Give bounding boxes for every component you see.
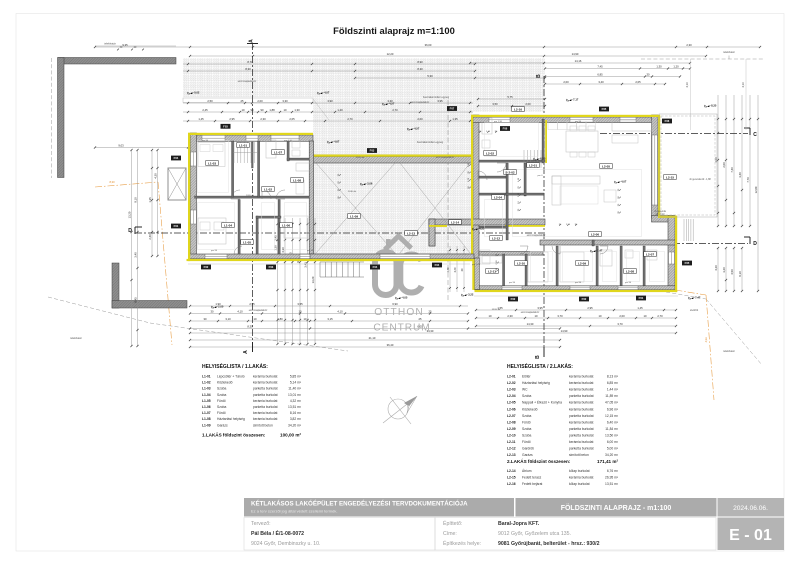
svg-text:34,20 m²: 34,20 m²	[288, 423, 302, 427]
svg-text:L2-13: L2-13	[407, 231, 415, 235]
svg-text:kerámia burkolat: kerámia burkolat	[253, 417, 277, 421]
svg-text:pm 90: pm 90	[509, 282, 516, 284]
svg-text:Pál Béla / É/1-08-0072: Pál Béla / É/1-08-0072	[251, 529, 304, 537]
svg-text:1,35: 1,35	[452, 117, 458, 121]
svg-text:F06: F06	[503, 127, 508, 131]
svg-text:L1-08: L1-08	[293, 178, 301, 182]
svg-text:WC: WC	[522, 388, 528, 392]
svg-text:2,40: 2,40	[447, 267, 450, 272]
svg-text:5,30: 5,30	[427, 74, 433, 78]
svg-text:Földszinti alaprajz m=1:100: Földszinti alaprajz m=1:100	[333, 25, 455, 36]
svg-text:39/30 db: 39/30 db	[492, 309, 501, 311]
svg-text:-4,07: -4,07	[323, 90, 330, 94]
svg-text:10: 10	[284, 108, 287, 112]
svg-text:10: 10	[254, 317, 257, 321]
svg-text:telekhatár: telekhatár	[723, 50, 735, 54]
svg-text:B: B	[535, 355, 541, 359]
svg-text:2,00: 2,00	[619, 314, 625, 318]
svg-text:pm 90: pm 90	[211, 250, 218, 252]
svg-text:171,41 m²: 171,41 m²	[597, 459, 618, 464]
svg-text:11,89 m²: 11,89 m²	[605, 394, 619, 398]
svg-text:10: 10	[242, 108, 245, 112]
svg-text:L2-07: L2-07	[507, 414, 516, 418]
svg-text:OTTHON: OTTHON	[374, 307, 424, 318]
svg-text:Garázs: Garázs	[522, 453, 533, 457]
svg-text:parketta burkolat: parketta burkolat	[569, 394, 594, 398]
svg-text:Tervező:: Tervező:	[251, 521, 271, 527]
svg-text:4,50: 4,50	[730, 269, 734, 275]
svg-text:Építkezés helye:: Építkezés helye:	[443, 540, 481, 547]
svg-text:Közlekedő: Közlekedő	[522, 407, 538, 411]
svg-text:13,51 m²: 13,51 m²	[288, 405, 302, 409]
svg-text:kerámia burkolat: kerámia burkolat	[253, 375, 277, 379]
svg-text:L2-14: L2-14	[451, 220, 459, 224]
svg-text:Átrium: Átrium	[522, 469, 532, 473]
svg-text:kerámia burkolat: kerámia burkolat	[569, 407, 593, 411]
svg-text:3,40: 3,40	[598, 80, 604, 84]
svg-text:D: D	[753, 241, 757, 247]
svg-text:telekhatár: telekhatár	[104, 42, 116, 46]
svg-text:eső-/csapadékvíz: eső-/csapadékvíz	[527, 234, 546, 237]
svg-text:6,96 m²: 6,96 m²	[607, 407, 619, 411]
svg-text:pm 90: pm 90	[625, 282, 632, 284]
svg-text:2,05: 2,05	[289, 117, 295, 121]
svg-text:HELYISÉGLISTA / 1.LAKÁS:: HELYISÉGLISTA / 1.LAKÁS:	[202, 362, 268, 370]
svg-text:5,00 m²: 5,00 m²	[607, 447, 619, 451]
svg-text:Fedett bejárat: Fedett bejárat	[522, 482, 542, 486]
svg-text:L1-04: L1-04	[224, 223, 232, 227]
svg-text:-8,35: -8,35	[710, 103, 717, 107]
svg-text:1,35: 1,35	[148, 197, 152, 203]
svg-text:6,40 m²: 6,40 m²	[607, 420, 619, 424]
svg-text:L1-09: L1-09	[350, 214, 358, 218]
svg-text:parketta burkolat: parketta burkolat	[569, 447, 594, 451]
svg-text:F07: F07	[450, 107, 455, 111]
svg-text:1,40: 1,40	[337, 108, 343, 112]
svg-text:2,30: 2,30	[507, 314, 513, 318]
svg-text:1.LAKÁS földszint összesen:: 1.LAKÁS földszint összesen:	[202, 432, 266, 438]
svg-text:11,40 m²: 11,40 m²	[288, 387, 302, 391]
svg-text:Fürdő: Fürdő	[217, 399, 226, 403]
svg-text:14,30: 14,30	[527, 322, 534, 326]
svg-text:4,13: 4,13	[685, 82, 689, 88]
svg-text:14,90: 14,90	[572, 52, 579, 56]
svg-text:5,85 m²: 5,85 m²	[290, 375, 302, 379]
svg-text:8,30: 8,30	[245, 67, 251, 71]
svg-text:12,80: 12,80	[754, 186, 758, 193]
svg-text:36,40: 36,40	[387, 343, 394, 347]
svg-text:-7,47: -7,47	[694, 295, 701, 299]
svg-text:30: 30	[204, 317, 207, 321]
svg-text:Alt: -4,10: Alt: -4,10	[655, 213, 665, 216]
svg-text:kőlap burkolat: kőlap burkolat	[569, 482, 590, 486]
svg-text:L1-01: L1-01	[202, 375, 211, 379]
svg-text:8,90: 8,90	[417, 60, 423, 64]
svg-text:L2-09: L2-09	[507, 427, 516, 431]
svg-text:6,00 m²: 6,00 m²	[607, 440, 619, 444]
svg-text:CENTRUM: CENTRUM	[373, 323, 430, 334]
svg-text:3,95: 3,95	[537, 306, 543, 310]
svg-text:8,13 m²: 8,13 m²	[607, 375, 619, 379]
svg-text:2,00: 2,00	[417, 117, 423, 121]
svg-text:30: 30	[647, 73, 650, 77]
svg-text:12,15 m²: 12,15 m²	[605, 414, 619, 418]
svg-text:parketta burkolat: parketta burkolat	[569, 414, 594, 418]
svg-text:1,45: 1,45	[198, 117, 204, 121]
svg-text:3,30: 3,30	[282, 99, 288, 103]
svg-text:-3,06: -3,06	[366, 181, 373, 185]
svg-text:9024 Győr, Dembinszky u. 10.: 9024 Győr, Dembinszky u. 10.	[251, 541, 321, 547]
svg-text:L2-15: L2-15	[507, 475, 516, 479]
svg-text:4,10: 4,10	[337, 310, 343, 314]
svg-text:eső-/csapadékvíz: eső-/csapadékvíz	[521, 311, 540, 314]
svg-text:2,70: 2,70	[657, 314, 663, 318]
svg-text:4,13: 4,13	[741, 82, 745, 88]
svg-text:5,75: 5,75	[507, 95, 513, 99]
svg-text:eső-/csapadékvíz: eső-/csapadékvíz	[411, 101, 430, 104]
svg-text:eső-/csapadékvíz: eső-/csapadékvíz	[436, 156, 455, 159]
svg-text:-4,57: -4,57	[413, 126, 420, 130]
svg-text:4,20: 4,20	[714, 265, 718, 271]
svg-text:-4,57: -4,57	[388, 101, 395, 105]
svg-text:1,80: 1,80	[277, 317, 283, 321]
svg-text:L1-04: L1-04	[202, 393, 211, 397]
svg-text:2024.06.06.: 2024.06.06.	[733, 505, 768, 512]
svg-text:Szoba: Szoba	[217, 387, 227, 391]
svg-text:Előtér: Előtér	[522, 375, 532, 379]
svg-text:47,05 m²: 47,05 m²	[605, 401, 619, 405]
svg-text:4,32 m²: 4,32 m²	[290, 399, 302, 403]
svg-text:pm 1,30: pm 1,30	[284, 140, 293, 142]
svg-text:pm 90: pm 90	[307, 250, 314, 252]
svg-text:S-2-02: S-2-02	[505, 170, 515, 174]
svg-text:kerámia burkolat: kerámia burkolat	[569, 388, 593, 392]
svg-text:F02: F02	[204, 265, 209, 269]
svg-text:L2-08: L2-08	[626, 269, 634, 273]
svg-text:Gardrób: Gardrób	[522, 447, 534, 451]
svg-text:10: 10	[304, 317, 307, 321]
svg-text:2,00: 2,00	[722, 162, 726, 168]
svg-text:L1-01: L1-01	[239, 143, 247, 147]
svg-text:2,40: 2,40	[148, 234, 152, 240]
svg-text:-6,55: -6,55	[539, 156, 546, 160]
svg-text:pm 90: pm 90	[575, 282, 582, 284]
svg-text:L1-05: L1-05	[243, 240, 251, 244]
svg-text:szellőző: szellőző	[690, 310, 699, 312]
svg-text:F05: F05	[685, 261, 690, 265]
svg-text:L2-15: L2-15	[666, 175, 674, 179]
svg-text:-3,22: -3,22	[467, 292, 474, 296]
svg-text:C: C	[753, 132, 757, 138]
svg-text:Ez a terv szerzői jog által vé: Ez a terv szerzői jog által védett szell…	[251, 509, 337, 514]
svg-text:26,95 m²: 26,95 m²	[605, 475, 619, 479]
svg-text:Szoba: Szoba	[217, 405, 227, 409]
svg-text:parketta burkolat: parketta burkolat	[253, 393, 278, 397]
svg-text:L2-09: L2-09	[578, 261, 586, 265]
svg-text:kerámia burkolat: kerámia burkolat	[569, 401, 593, 405]
svg-text:9,10: 9,10	[134, 197, 138, 203]
svg-text:9081 Győrújbarát, belterület: 9081 Győrújbarát, belterület - hrsz.: 93…	[498, 541, 600, 547]
svg-text:3,70: 3,70	[557, 314, 563, 318]
svg-text:12,20: 12,20	[387, 52, 394, 56]
svg-text:kerámia burkolat: kerámia burkolat	[253, 381, 277, 385]
svg-text:7,70: 7,70	[746, 177, 750, 183]
svg-text:L2-16: L2-16	[507, 482, 516, 486]
svg-text:25: 25	[241, 99, 244, 103]
svg-text:L2-08: L2-08	[507, 420, 516, 424]
svg-text:L2-04: L2-04	[507, 394, 516, 398]
svg-text:F04: F04	[174, 156, 179, 160]
svg-text:L1-06: L1-06	[202, 405, 211, 409]
svg-text:10: 10	[489, 314, 492, 318]
svg-text:D: D	[128, 228, 132, 234]
svg-text:11,84 m²: 11,84 m²	[605, 427, 619, 431]
svg-text:30: 30	[211, 310, 214, 314]
svg-text:Fürdő: Fürdő	[522, 420, 531, 424]
svg-text:Szoba: Szoba	[522, 414, 532, 418]
svg-text:2,70: 2,70	[392, 108, 398, 112]
svg-text:vb gerenda: vb gerenda	[654, 210, 666, 213]
svg-text:L2-12: L2-12	[492, 236, 500, 240]
svg-text:2.LAKÁS földszint összesen:: 2.LAKÁS földszint összesen:	[507, 458, 571, 464]
svg-text:100,00 m²: 100,00 m²	[280, 433, 301, 438]
svg-text:telekhatár: telekhatár	[70, 336, 82, 340]
svg-text:1,30: 1,30	[294, 108, 300, 112]
svg-text:13,51 m²: 13,51 m²	[605, 482, 619, 486]
svg-text:2,50: 2,50	[207, 99, 213, 103]
svg-text:parketta burkolat: parketta burkolat	[569, 427, 594, 431]
svg-text:9,35: 9,35	[122, 43, 128, 47]
svg-text:2,00: 2,00	[525, 102, 531, 106]
svg-text:Szoba: Szoba	[217, 393, 227, 397]
svg-text:L2-16: L2-16	[514, 107, 522, 111]
svg-text:L2-14: L2-14	[507, 469, 516, 473]
svg-text:2,05: 2,05	[635, 80, 641, 84]
svg-text:2,30: 2,30	[686, 43, 692, 47]
svg-text:L2-07: L2-07	[646, 252, 654, 256]
svg-text:Háztartási helyiség: Háztartási helyiség	[217, 417, 245, 421]
svg-text:6,76 m²: 6,76 m²	[607, 469, 619, 473]
svg-text:Szoba: Szoba	[522, 427, 532, 431]
svg-text:F04: F04	[373, 265, 378, 269]
svg-text:L1-07: L1-07	[274, 150, 282, 154]
svg-text:10: 10	[535, 314, 538, 318]
svg-text:F03: F03	[370, 149, 375, 153]
svg-text:7,45: 7,45	[597, 65, 603, 69]
svg-text:Háztartási helyiség: Háztartási helyiség	[522, 381, 550, 385]
svg-text:L2-10: L2-10	[517, 261, 525, 265]
svg-text:L2-05: L2-05	[507, 401, 516, 405]
svg-text:-0,02: -0,02	[193, 90, 200, 94]
svg-text:-2,00: -2,00	[217, 304, 224, 308]
svg-text:-4,05: -4,05	[401, 295, 408, 299]
svg-text:L1-03: L1-03	[202, 387, 211, 391]
svg-text:3030 db: 3030 db	[348, 191, 357, 193]
svg-text:8,30: 8,30	[417, 67, 423, 71]
svg-text:8,30: 8,30	[109, 180, 115, 184]
svg-text:21,10: 21,10	[369, 336, 376, 340]
svg-text:8,16 m²: 8,16 m²	[290, 411, 302, 415]
svg-text:L1-02: L1-02	[202, 381, 211, 385]
svg-text:kerámia burkolat: kerámia burkolat	[569, 381, 593, 385]
svg-text:13,50 m²: 13,50 m²	[605, 434, 619, 438]
svg-text:F02: F02	[511, 297, 516, 301]
svg-text:8,45: 8,45	[134, 297, 138, 303]
svg-text:L1-02: L1-02	[264, 187, 272, 191]
svg-text:2,45: 2,45	[202, 108, 208, 112]
svg-text:7,40: 7,40	[730, 167, 734, 173]
svg-text:2,00: 2,00	[563, 80, 569, 84]
svg-text:L2-05: L2-05	[602, 164, 610, 168]
svg-text:6,85 m²: 6,85 m²	[607, 381, 619, 385]
svg-text:3,90: 3,90	[327, 99, 333, 103]
svg-text:L2-06: L2-06	[507, 407, 516, 411]
svg-text:6,10: 6,10	[738, 271, 742, 277]
svg-text:2,95: 2,95	[229, 117, 235, 121]
svg-text:L2-02: L2-02	[486, 151, 494, 155]
svg-text:4,10: 4,10	[237, 310, 243, 314]
svg-text:Közlekedő: Közlekedő	[217, 381, 233, 385]
svg-text:Baral-Jopra KFT.: Baral-Jopra KFT.	[498, 521, 540, 527]
svg-text:6,90: 6,90	[392, 302, 398, 306]
svg-text:5,14 m²: 5,14 m²	[290, 381, 302, 385]
svg-text:parketta burkolat: parketta burkolat	[569, 434, 594, 438]
svg-text:kerámia burkolat: kerámia burkolat	[569, 420, 593, 424]
svg-text:3,40: 3,40	[134, 252, 138, 258]
svg-text:2,30: 2,30	[260, 117, 266, 121]
svg-text:vb gerenda A2: -1,88: vb gerenda A2: -1,88	[689, 178, 711, 181]
svg-text:használati kültéri egység: használati kültéri egység	[417, 141, 444, 144]
svg-text:L1-05: L1-05	[202, 399, 211, 403]
svg-text:L2-13: L2-13	[507, 453, 516, 457]
svg-text:3,95: 3,95	[437, 99, 443, 103]
svg-text:1,44 m²: 1,44 m²	[607, 388, 619, 392]
svg-text:-4,35: -4,35	[478, 226, 485, 230]
svg-text:eső-/csapadékvíz: eső-/csapadékvíz	[238, 80, 257, 83]
svg-text:Garázs: Garázs	[217, 423, 228, 427]
svg-text:4,50: 4,50	[704, 337, 708, 343]
svg-text:Lépcsőtér + Tároló: Lépcsőtér + Tároló	[217, 375, 245, 379]
svg-text:F06: F06	[665, 119, 670, 123]
svg-text:2,00: 2,00	[257, 99, 263, 103]
svg-text:3,82 m²: 3,82 m²	[290, 417, 302, 421]
svg-text:3,10: 3,10	[225, 317, 231, 321]
svg-text:3,40: 3,40	[738, 172, 742, 178]
svg-text:F05: F05	[602, 107, 607, 111]
svg-text:pm 1,20: pm 1,20	[472, 264, 481, 266]
svg-text:pm 90: pm 90	[202, 140, 209, 142]
svg-text:L1-09: L1-09	[202, 423, 211, 427]
svg-text:1,88: 1,88	[269, 108, 275, 112]
svg-text:3,20: 3,20	[722, 267, 726, 273]
svg-text:9012 Győr, Győzelem utca 135.: 9012 Győr, Győzelem utca 135.	[498, 531, 571, 537]
svg-text:pm 90: pm 90	[575, 121, 582, 123]
svg-text:kerámia burkolat: kerámia burkolat	[569, 475, 593, 479]
svg-text:3,40: 3,40	[454, 267, 457, 272]
svg-text:1,20: 1,20	[673, 65, 679, 69]
svg-text:F03: F03	[223, 125, 228, 129]
svg-text:L1-06: L1-06	[282, 223, 290, 227]
svg-text:Építtető:: Építtető:	[443, 520, 462, 527]
svg-text:10: 10	[599, 314, 602, 318]
svg-text:FÖLDSZINTI ALAPRAJZ - m1:100: FÖLDSZINTI ALAPRAJZ - m1:100	[561, 503, 672, 512]
svg-text:L2-10: L2-10	[507, 434, 516, 438]
svg-text:parketta burkolat: parketta burkolat	[253, 387, 278, 391]
svg-text:3,50: 3,50	[492, 102, 498, 106]
svg-text:L2-11: L2-11	[507, 440, 516, 444]
svg-text:2,70: 2,70	[347, 117, 353, 121]
svg-text:simított beton: simított beton	[253, 423, 273, 427]
svg-text:4,30: 4,30	[154, 173, 158, 179]
svg-text:9,03: 9,03	[118, 144, 124, 148]
svg-text:Nappali + Étkező + Konyha: Nappali + Étkező + Konyha	[522, 400, 562, 405]
svg-text:F01: F01	[639, 296, 644, 300]
svg-text:kőlap burkolat: kőlap burkolat	[569, 469, 590, 473]
svg-text:25: 25	[429, 310, 432, 314]
svg-text:10: 10	[299, 310, 302, 314]
svg-text:pm 1,30: pm 1,30	[494, 121, 503, 123]
svg-text:L2-02: L2-02	[507, 381, 516, 385]
svg-text:A: A	[249, 39, 255, 43]
svg-text:L1-08: L1-08	[202, 417, 211, 421]
svg-text:2,95: 2,95	[587, 306, 593, 310]
svg-text:F02: F02	[582, 297, 587, 301]
svg-text:F04: F04	[435, 263, 440, 267]
svg-text:14,16: 14,16	[575, 59, 582, 63]
svg-text:1,30: 1,30	[656, 65, 662, 69]
svg-text:-7,17: -7,17	[572, 97, 579, 101]
svg-text:Fürdő: Fürdő	[522, 440, 531, 444]
svg-text:L2-01: L2-01	[507, 375, 516, 379]
svg-text:13,01 m²: 13,01 m²	[288, 393, 302, 397]
svg-text:L2-12: L2-12	[507, 447, 516, 451]
svg-text:Címe:: Címe:	[443, 531, 457, 537]
svg-text:36,00: 36,00	[425, 43, 432, 47]
svg-text:6,85: 6,85	[597, 73, 603, 77]
svg-text:L2-03: L2-03	[507, 388, 516, 392]
svg-text:14,90: 14,90	[561, 329, 568, 333]
svg-text:10: 10	[644, 314, 647, 318]
svg-text:Szoba: Szoba	[522, 434, 532, 438]
svg-text:1,45: 1,45	[637, 306, 643, 310]
svg-text:HELYISÉGLISTA / 2.LAKÁS:: HELYISÉGLISTA / 2.LAKÁS:	[507, 362, 573, 370]
svg-text:kerámia burkolat: kerámia burkolat	[569, 375, 593, 379]
svg-text:Fedett terasz: Fedett terasz	[522, 475, 542, 479]
svg-text:3,40: 3,40	[304, 262, 308, 268]
svg-text:Szoba: Szoba	[522, 394, 532, 398]
svg-text:3,55: 3,55	[297, 302, 303, 306]
svg-text:eső-/csapadékvíz: eső-/csapadékvíz	[249, 309, 268, 312]
svg-text:kerámia burkolat: kerámia burkolat	[569, 440, 593, 444]
svg-text:3,15: 3,15	[327, 317, 333, 321]
svg-text:pm 0: pm 0	[538, 175, 544, 177]
svg-text:Fürdő: Fürdő	[217, 411, 226, 415]
svg-text:30/30 db: 30/30 db	[356, 157, 365, 159]
svg-text:B: B	[536, 74, 542, 78]
svg-text:-4,67: -4,67	[333, 139, 340, 143]
svg-text:kerámia burkolat: kerámia burkolat	[253, 399, 277, 403]
svg-text:KÉTLAKÁSOS LAKÓÉPÜLET ENGEDÉLY: KÉTLAKÁSOS LAKÓÉPÜLET ENGEDÉLYEZÉSI TERV…	[251, 500, 468, 508]
svg-text:3,70: 3,70	[617, 322, 623, 326]
svg-text:L2-01: L2-01	[529, 163, 537, 167]
svg-text:L1-03: L1-03	[208, 161, 216, 165]
svg-text:E - 01: E - 01	[729, 527, 772, 544]
svg-text:2020-db: 2020-db	[246, 195, 255, 197]
svg-text:13,20: 13,20	[311, 276, 315, 283]
svg-text:parketta burkolat: parketta burkolat	[253, 405, 278, 409]
svg-text:kerámia burkolat: kerámia burkolat	[253, 411, 277, 415]
svg-text:L2-06: L2-06	[591, 232, 599, 236]
